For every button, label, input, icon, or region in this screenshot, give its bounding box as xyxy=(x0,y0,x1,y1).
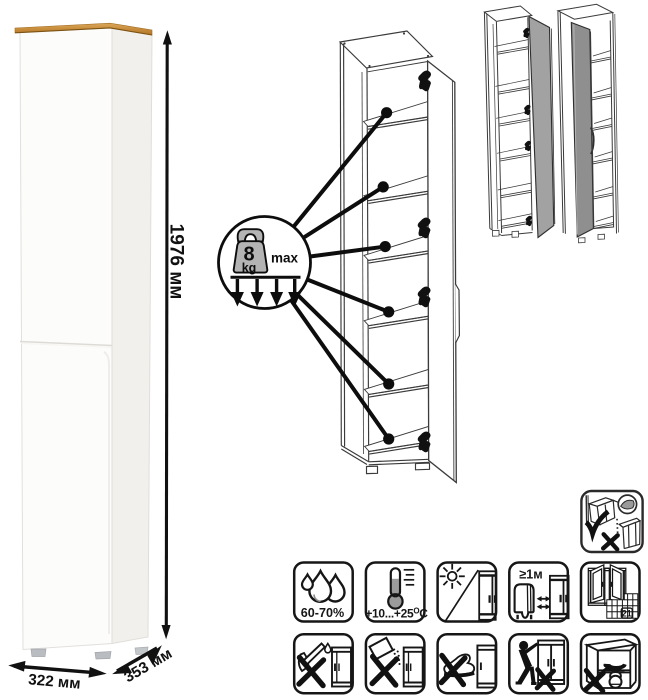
svg-text:60-70%: 60-70% xyxy=(301,606,344,620)
svg-text:max: max xyxy=(271,251,299,266)
svg-text:kg: kg xyxy=(242,261,257,275)
svg-text:21: 21 xyxy=(622,608,632,618)
svg-text:322 мм: 322 мм xyxy=(28,671,82,692)
svg-text:≥1м: ≥1м xyxy=(519,567,543,582)
svg-text:+10...+25OC: +10...+25OC xyxy=(365,606,428,620)
svg-text:1976 мм: 1976 мм xyxy=(166,224,187,300)
